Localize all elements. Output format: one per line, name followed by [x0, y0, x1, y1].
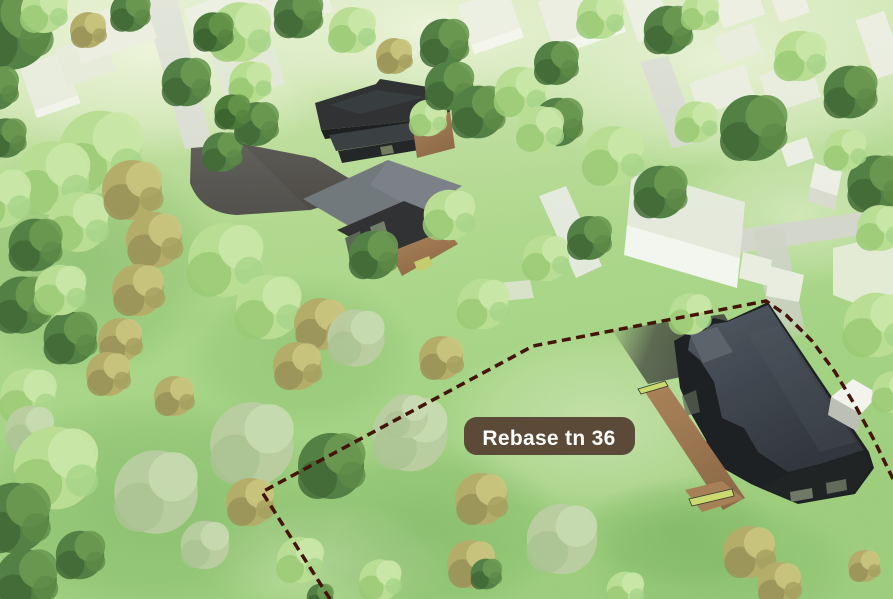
svg-text:Rebase tn 36: Rebase tn 36	[482, 427, 615, 450]
